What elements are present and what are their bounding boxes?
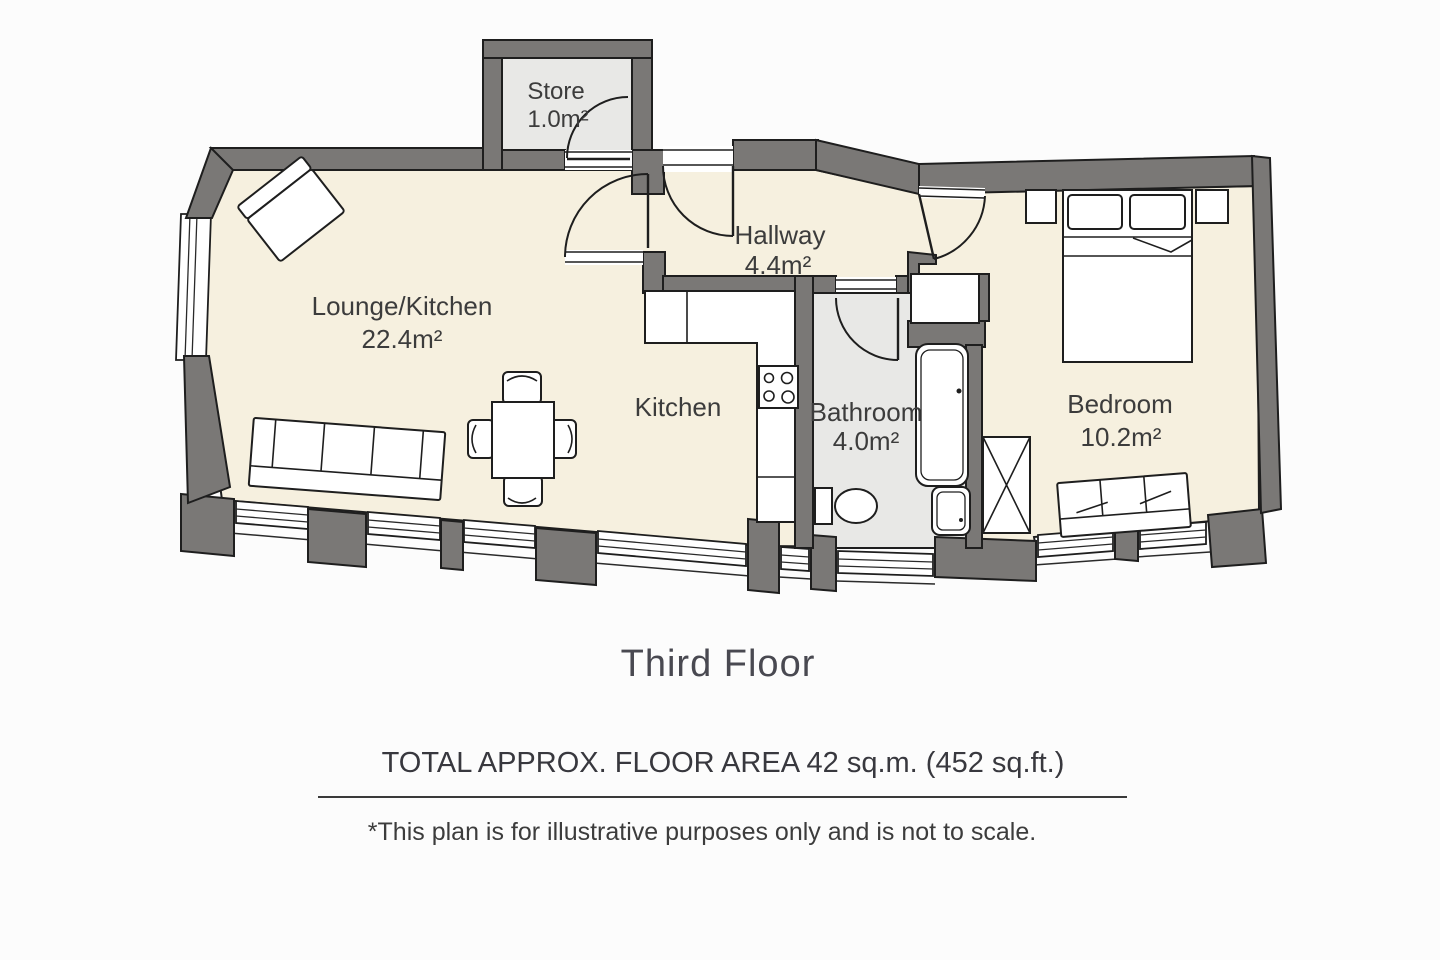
store-floor bbox=[500, 58, 632, 152]
wall-store-top bbox=[483, 40, 652, 58]
room-area-lounge-kitchen: 22.4m² bbox=[362, 324, 443, 354]
room-area-hallway: 4.4m² bbox=[745, 250, 812, 280]
table-top bbox=[492, 402, 554, 478]
bathtub bbox=[916, 344, 968, 486]
wall-store-bottom bbox=[502, 150, 565, 170]
wall-pier bbox=[1208, 509, 1266, 567]
loveseat bbox=[1057, 473, 1191, 537]
wall-pier bbox=[811, 535, 836, 591]
room-area-store: 1.0m² bbox=[527, 106, 588, 133]
room-label-hallway: Hallway bbox=[734, 220, 825, 250]
window bbox=[836, 551, 935, 584]
wall-pier bbox=[935, 537, 1036, 581]
wardrobe bbox=[983, 437, 1030, 533]
hallway-cupboard bbox=[911, 274, 979, 323]
threshold bbox=[836, 277, 896, 292]
pillow bbox=[1130, 195, 1185, 229]
wall-pier bbox=[748, 519, 779, 593]
window-bay-left bbox=[176, 214, 211, 360]
wall-hall-chunk bbox=[643, 252, 665, 293]
window bbox=[230, 501, 312, 540]
dining-chair bbox=[504, 476, 542, 506]
nightstand bbox=[1196, 190, 1228, 223]
room-label-bathroom: Bathroom bbox=[810, 397, 923, 427]
room-label-store: Store bbox=[527, 78, 584, 105]
room-label-bedroom: Bedroom bbox=[1067, 389, 1173, 419]
stove-hob bbox=[759, 366, 798, 408]
wall-pier bbox=[536, 528, 596, 585]
window bbox=[459, 520, 539, 559]
threshold bbox=[919, 186, 985, 200]
room-label-kitchen: Kitchen bbox=[635, 392, 722, 422]
wall-top-lounge bbox=[211, 148, 502, 170]
window bbox=[364, 512, 444, 551]
threshold bbox=[663, 146, 733, 172]
wall-store-right bbox=[632, 58, 652, 150]
window bbox=[779, 547, 811, 579]
wall-pier bbox=[308, 509, 366, 567]
floor-title: Third Floor bbox=[621, 643, 816, 685]
total-area-text: TOTAL APPROX. FLOOR AREA 42 sq.m. (452 s… bbox=[382, 747, 1065, 779]
pillow bbox=[1068, 195, 1122, 229]
wall-pier bbox=[441, 520, 463, 570]
sink bbox=[932, 487, 970, 535]
floor-plan-canvas: Store 1.0m² Hallway 4.4m² Lounge/Kitchen… bbox=[0, 0, 1440, 960]
dining-chair bbox=[468, 420, 494, 458]
footer: Third Floor TOTAL APPROX. FLOOR AREA 42 … bbox=[318, 643, 1127, 846]
threshold bbox=[565, 250, 643, 265]
toilet bbox=[815, 488, 877, 524]
room-label-lounge-kitchen: Lounge/Kitchen bbox=[312, 291, 493, 321]
nightstand bbox=[1026, 190, 1056, 223]
wall-store-left bbox=[483, 56, 502, 170]
dining-chair bbox=[503, 372, 541, 404]
sofa bbox=[249, 418, 446, 500]
room-area-bedroom: 10.2m² bbox=[1081, 422, 1162, 452]
disclaimer-text: *This plan is for illustrative purposes … bbox=[368, 818, 1036, 846]
floor-plan-page: Store 1.0m² Hallway 4.4m² Lounge/Kitchen… bbox=[0, 0, 1440, 960]
wall-entrance-bump bbox=[733, 140, 818, 170]
room-area-bathroom: 4.0m² bbox=[833, 426, 900, 456]
bed bbox=[1063, 190, 1192, 362]
